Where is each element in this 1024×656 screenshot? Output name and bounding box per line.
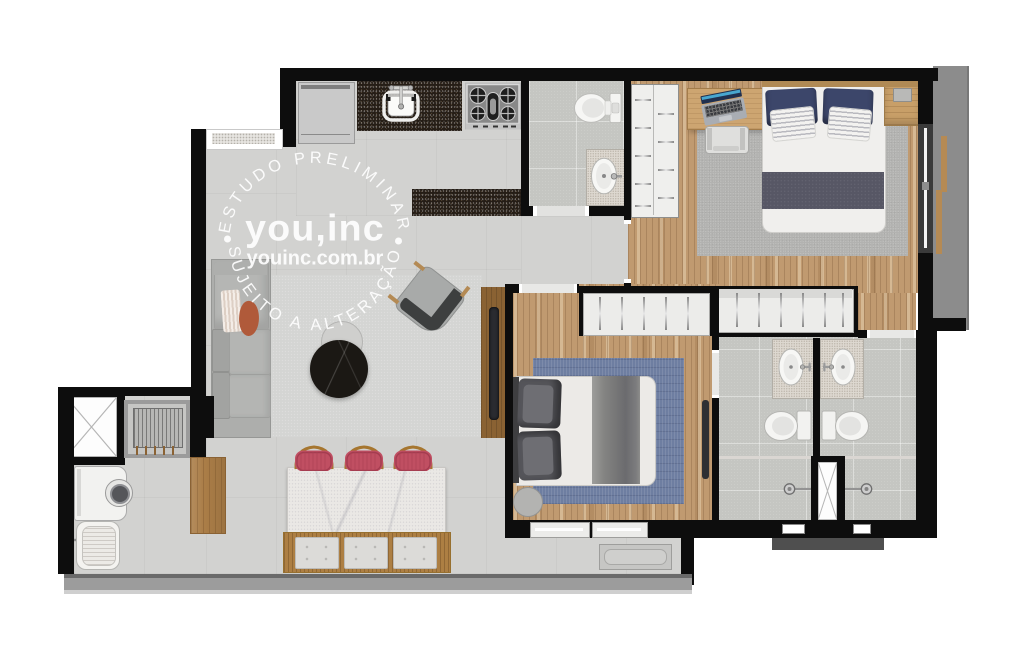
svg-text:you,inc: you,inc	[245, 207, 385, 249]
svg-text:youinc.com.br: youinc.com.br	[247, 248, 384, 270]
